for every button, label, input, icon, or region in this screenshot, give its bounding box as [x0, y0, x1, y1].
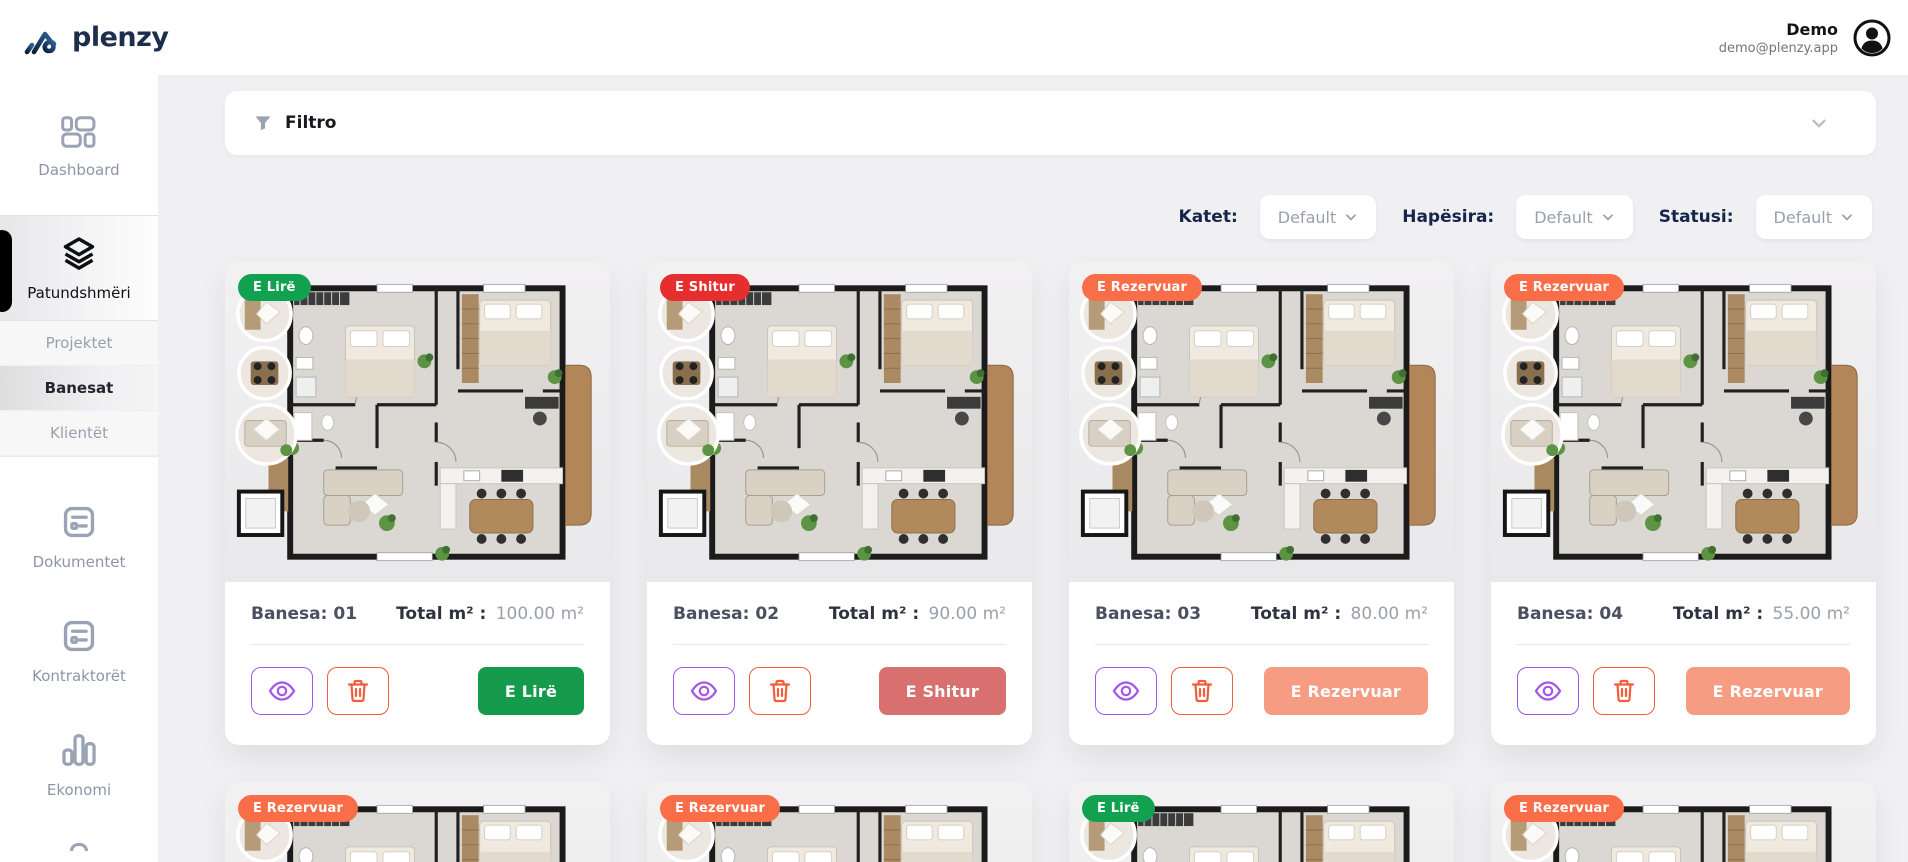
user-avatar-icon[interactable]	[1852, 18, 1892, 58]
total-area-value: 100.00 m²	[496, 604, 584, 624]
apartment-card-body: Banesa: 04 Total m² : 55.00 m²	[1491, 582, 1876, 745]
trash-icon	[769, 679, 791, 703]
delete-button[interactable]	[1593, 667, 1655, 715]
status-badge: E Lirë	[238, 274, 311, 301]
card-actions: E Shitur	[673, 667, 1006, 715]
apartment-card: E Rezervuar	[647, 782, 1032, 862]
view-button[interactable]	[673, 667, 735, 715]
sidebar-item-ekonomi[interactable]: Ekonomi	[0, 731, 158, 799]
sidebar-item-label: Patundshmëri	[27, 284, 130, 302]
bar-chart-icon	[60, 731, 98, 769]
subnav-item-banesat[interactable]: Banesat	[0, 366, 158, 411]
floor-plan-image	[1495, 271, 1870, 574]
filter-group-katet: Katet: Default	[1179, 195, 1377, 239]
total-area: Total m² : 55.00 m²	[1673, 604, 1850, 624]
user-name: Demo	[1719, 20, 1838, 39]
apartments-grid: E Lirë	[225, 261, 1876, 862]
sidebar: Dashboard Patundshmëri Projektet Banesat…	[0, 75, 158, 862]
status-button[interactable]: E Lirë	[478, 667, 584, 715]
eye-icon	[690, 680, 718, 702]
filter-group-statusi: Statusi: Default	[1659, 195, 1872, 239]
filter-group-hapesira: Hapësira: Default	[1402, 195, 1632, 239]
layers-icon	[61, 236, 97, 272]
status-badge: E Rezervuar	[1504, 795, 1624, 822]
brand-name: plenzy	[72, 22, 168, 53]
total-area-label: Total m² :	[396, 604, 486, 624]
status-button[interactable]: E Rezervuar	[1686, 667, 1850, 715]
statusi-select[interactable]: Default	[1756, 195, 1872, 239]
apartment-image: E Lirë	[225, 261, 610, 582]
unit-label: Banesa: 01	[251, 604, 357, 624]
total-area: Total m² : 90.00 m²	[829, 604, 1006, 624]
sidebar-item-kontraktoret[interactable]: Kontraktorët	[0, 617, 158, 685]
apartment-card: E Rezervuar	[1491, 782, 1876, 862]
sidebar-item-dashboard[interactable]: Dashboard	[0, 115, 158, 179]
eye-icon	[268, 680, 296, 702]
brand-logo-icon	[24, 20, 66, 56]
trash-icon	[1191, 679, 1213, 703]
apartment-image: E Rezervuar	[1491, 782, 1876, 862]
sidebar-subnav: Projektet Banesat Klientët	[0, 321, 158, 457]
apartment-card: E Lirë	[225, 261, 610, 745]
status-badge: E Rezervuar	[1504, 274, 1624, 301]
apartment-card: E Rezervuar	[1069, 261, 1454, 745]
apartment-card-body: Banesa: 02 Total m² : 90.00 m²	[647, 582, 1032, 745]
total-area-value: 55.00 m²	[1773, 604, 1850, 624]
filters-row: Katet: Default Hapësira: Default Statusi…	[225, 195, 1872, 239]
status-badge: E Rezervuar	[238, 795, 358, 822]
status-button[interactable]: E Shitur	[879, 667, 1006, 715]
sidebar-item-label: Dashboard	[38, 161, 119, 179]
header: plenzy Demo demo@plenzy.app	[0, 0, 1908, 75]
divider	[251, 644, 584, 645]
divider	[1517, 644, 1850, 645]
status-badge: E Rezervuar	[1082, 274, 1202, 301]
sidebar-item-label: Ekonomi	[47, 781, 111, 799]
user-menu[interactable]: Demo demo@plenzy.app	[1719, 18, 1892, 58]
chevron-down-icon	[1840, 210, 1854, 224]
total-area-label: Total m² :	[1251, 604, 1341, 624]
filter-accordion[interactable]: Filtro	[225, 91, 1876, 155]
sidebar-item-patundshmeri[interactable]: Patundshmëri	[0, 215, 158, 321]
apartment-card: E Rezervuar	[1491, 261, 1876, 745]
subnav-item-klientet[interactable]: Klientët	[0, 411, 158, 456]
apartment-card: E Lirë	[1069, 782, 1454, 862]
filter-label: Katet:	[1179, 207, 1238, 227]
status-badge: E Rezervuar	[660, 795, 780, 822]
apartment-image: E Rezervuar	[647, 782, 1032, 862]
delete-button[interactable]	[749, 667, 811, 715]
divider	[1095, 644, 1428, 645]
apartment-card-body: Banesa: 01 Total m² : 100.00 m²	[225, 582, 610, 745]
active-indicator	[0, 230, 12, 312]
status-badge: E Shitur	[660, 274, 750, 301]
card-actions: E Lirë	[251, 667, 584, 715]
sidebar-item-label: Dokumentet	[33, 553, 126, 571]
sidebar-item-dokumentet[interactable]: Dokumentet	[0, 503, 158, 571]
apartment-card-body: Banesa: 03 Total m² : 80.00 m²	[1069, 582, 1454, 745]
chevron-down-icon	[1601, 210, 1615, 224]
apartment-card: E Shitur	[647, 261, 1032, 745]
main-content: Filtro Katet: Default Hapësira: Default …	[158, 75, 1908, 862]
clipped-menu-icon	[70, 843, 88, 851]
delete-button[interactable]	[1171, 667, 1233, 715]
brand-logo[interactable]: plenzy	[24, 20, 168, 56]
unit-label: Banesa: 03	[1095, 604, 1201, 624]
delete-button[interactable]	[327, 667, 389, 715]
filter-label: Hapësira:	[1402, 207, 1494, 227]
hapesira-select-value: Default	[1534, 208, 1592, 227]
total-area: Total m² : 100.00 m²	[396, 604, 584, 624]
document-icon	[60, 617, 98, 655]
apartment-image: E Shitur	[647, 261, 1032, 582]
status-button[interactable]: E Rezervuar	[1264, 667, 1428, 715]
floor-plan-image	[651, 271, 1026, 574]
view-button[interactable]	[1095, 667, 1157, 715]
total-area: Total m² : 80.00 m²	[1251, 604, 1428, 624]
dashboard-grid-icon	[60, 115, 98, 149]
total-area-label: Total m² :	[1673, 604, 1763, 624]
unit-label: Banesa: 02	[673, 604, 779, 624]
view-button[interactable]	[1517, 667, 1579, 715]
total-area-value: 80.00 m²	[1351, 604, 1428, 624]
filter-accordion-label: Filtro	[285, 113, 336, 133]
card-actions: E Rezervuar	[1517, 667, 1850, 715]
subnav-item-projektet[interactable]: Projektet	[0, 321, 158, 366]
view-button[interactable]	[251, 667, 313, 715]
status-badge: E Lirë	[1082, 795, 1155, 822]
katet-select-value: Default	[1278, 208, 1336, 227]
apartment-image: E Rezervuar	[1491, 261, 1876, 582]
statusi-select-value: Default	[1774, 208, 1832, 227]
apartment-image: E Rezervuar	[225, 782, 610, 862]
apartment-image: E Lirë	[1069, 782, 1454, 862]
eye-icon	[1534, 680, 1562, 702]
trash-icon	[1613, 679, 1635, 703]
funnel-icon	[253, 113, 273, 133]
chevron-down-icon	[1344, 210, 1358, 224]
floor-plan-image	[229, 271, 604, 574]
apartment-card: E Rezervuar	[225, 782, 610, 862]
katet-select[interactable]: Default	[1260, 195, 1376, 239]
total-area-value: 90.00 m²	[929, 604, 1006, 624]
apartment-image: E Rezervuar	[1069, 261, 1454, 582]
floor-plan-image	[1073, 271, 1448, 574]
filter-label: Statusi:	[1659, 207, 1734, 227]
document-icon	[60, 503, 98, 541]
sidebar-item-label: Kontraktorët	[32, 667, 126, 685]
unit-label: Banesa: 04	[1517, 604, 1623, 624]
hapesira-select[interactable]: Default	[1516, 195, 1632, 239]
trash-icon	[347, 679, 369, 703]
eye-icon	[1112, 680, 1140, 702]
divider	[673, 644, 1006, 645]
card-actions: E Rezervuar	[1095, 667, 1428, 715]
total-area-label: Total m² :	[829, 604, 919, 624]
chevron-down-icon[interactable]	[1808, 112, 1830, 134]
user-email: demo@plenzy.app	[1719, 41, 1838, 56]
